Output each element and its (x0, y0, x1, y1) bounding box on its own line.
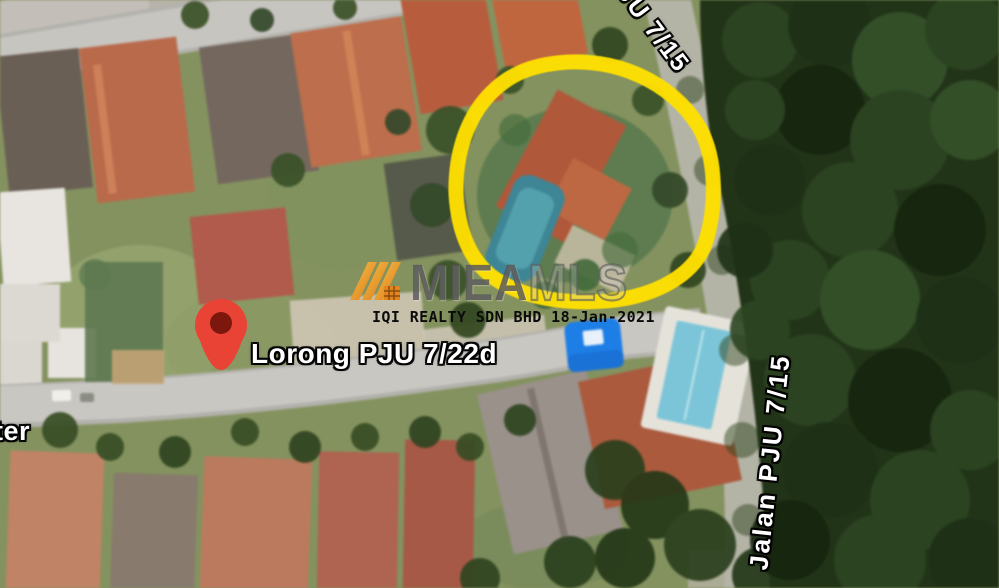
satellite-map-image: Lorong PJU 7/22d ter JU 7/15 Jalan PJU 7… (0, 0, 999, 588)
red-map-pin-icon (195, 299, 247, 370)
street-label-partial: ter (0, 416, 30, 447)
street-label: Lorong PJU 7/22d (251, 338, 497, 370)
mieamls-logo-icon (346, 256, 406, 308)
watermark: MIEAMLS (346, 256, 652, 308)
watermark-brand: MIEAMLS (410, 257, 628, 308)
watermark-brand-mls: MLS (528, 254, 628, 311)
watermark-agency-line: IQI REALTY SDN BHD 18-Jan-2021 (372, 308, 655, 326)
watermark-brand-miea: MIEA (410, 254, 528, 311)
